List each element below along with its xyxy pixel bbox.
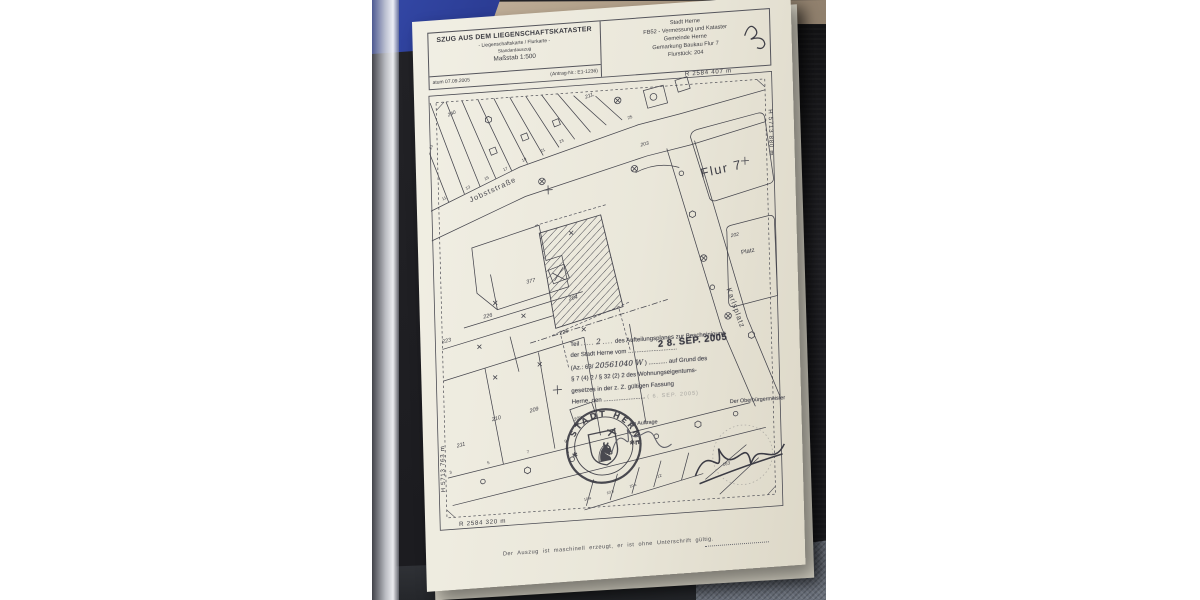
map-label: 210	[490, 415, 501, 424]
map-label: 23	[428, 143, 435, 150]
map-label: 211,	[583, 91, 595, 101]
certification-stamp: Teil ..... 2 .... des Aufteilungsplanes …	[570, 322, 791, 420]
map-label: 211	[455, 441, 466, 449]
footer-note: Der Auszug ist maschinell erzeugt, er is…	[426, 531, 791, 563]
handwritten-az: 20561040 W	[595, 358, 643, 370]
map-label: 10 b	[606, 489, 614, 495]
map-label: 377	[526, 277, 537, 285]
handwritten-mark	[737, 16, 768, 52]
faint-date-stamp: ( 6. SEP. 2005)	[647, 391, 699, 401]
map-label: 21	[540, 147, 547, 154]
map-label: Platz	[741, 247, 756, 257]
map-label: 12	[656, 472, 662, 478]
map-label: 15	[483, 175, 490, 182]
map-label: 225	[558, 328, 570, 337]
svg-text:✱: ✱	[571, 451, 578, 460]
map-label: 203	[639, 140, 650, 148]
map-label: 240	[446, 110, 457, 119]
map-label: 11	[441, 195, 448, 202]
map-label: 23	[558, 137, 565, 144]
photo-of-document: SZUG AUS DEM LIEGENSCHAFTSKATASTER - Lie…	[372, 0, 826, 600]
map-label: 223	[441, 337, 452, 345]
map-label: H 5713 763 m	[439, 445, 447, 492]
map-label: 25	[627, 114, 634, 121]
signature-large	[686, 413, 796, 498]
map-label: 5	[487, 460, 491, 466]
map-label: Flur 7	[699, 157, 743, 181]
screenshot: SZUG AUS DEM LIEGENSCHAFTSKATASTER - Lie…	[0, 0, 1200, 600]
handwritten-teil: 2	[596, 337, 601, 346]
plastic-sleeve	[372, 0, 399, 600]
map-label: Karlsplatz	[724, 287, 747, 330]
map-label: 202	[729, 232, 739, 240]
map-label: 7	[526, 449, 530, 455]
map-label: 10 c	[629, 483, 637, 489]
map-label: 209	[528, 406, 539, 415]
map-label: 13	[465, 184, 472, 191]
map-label: Jobststraße	[468, 175, 518, 204]
map-label: 17	[502, 165, 509, 172]
paper-document: SZUG AUS DEM LIEGENSCHAFTSKATASTER - Lie…	[412, 0, 805, 592]
map-label: 3	[449, 469, 453, 475]
map-label: H 5713 880 m	[767, 109, 775, 156]
im-auftrage-label: Im Auftrage	[630, 417, 658, 430]
